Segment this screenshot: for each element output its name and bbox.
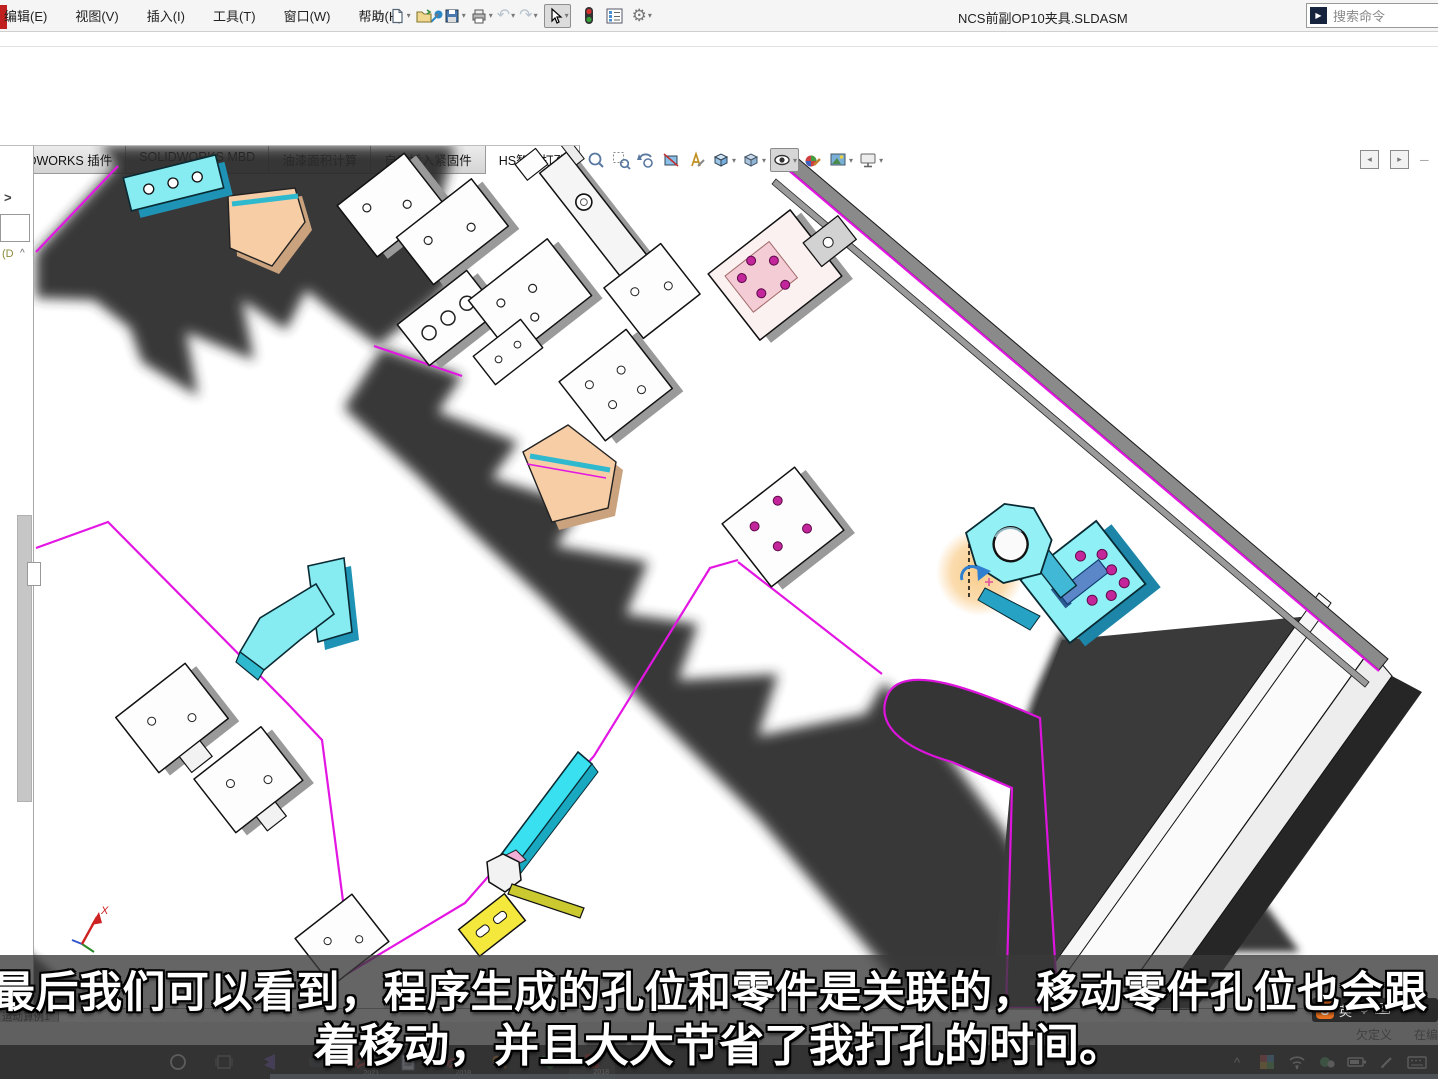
options-gear-icon[interactable]: ⚙ <box>630 3 654 29</box>
menu-insert[interactable]: 插入(I) <box>133 6 199 25</box>
tree-filter-box[interactable] <box>0 214 30 242</box>
minimize-pane-icon[interactable]: ─ <box>1420 153 1429 167</box>
rebuild-traffic-light-icon[interactable] <box>581 3 597 29</box>
tree-root-label: (D <box>2 248 14 260</box>
section-view-icon[interactable] <box>660 149 682 171</box>
menu-bar: 编辑(E) 视图(V) 插入(I) 工具(T) 窗口(W) 帮助(H) ⌂ ↶ … <box>0 0 1438 32</box>
annotation-view-icon[interactable] <box>685 149 707 171</box>
quick-access-toolbar: ⌂ ↶ ↷ ⚙ <box>372 0 654 31</box>
axis-x-label: X <box>100 905 109 917</box>
toolbar-divider <box>0 46 1438 47</box>
open-icon[interactable] <box>413 3 441 29</box>
undo-icon[interactable]: ↶ <box>495 3 517 29</box>
redo-icon[interactable]: ↷ <box>517 3 539 29</box>
taskbar-edge-strip <box>270 1074 1438 1079</box>
frame-structure <box>995 593 1422 1010</box>
search-icon: ▶ <box>1310 7 1327 24</box>
ime-toolbar: S 英 <box>1312 998 1438 1022</box>
search-placeholder: 搜索命令 <box>1333 6 1385 25</box>
previous-view-icon[interactable] <box>635 149 657 171</box>
view-settings-icon[interactable] <box>857 149 884 171</box>
status-bar: 欠定义 在编辑 <box>0 1022 1438 1045</box>
panel-splitter-handle[interactable] <box>27 562 41 586</box>
home-icon[interactable]: ⌂ <box>372 3 386 29</box>
zoom-to-area-icon[interactable] <box>610 149 632 171</box>
status-under-defined: 欠定义 <box>1356 1026 1392 1043</box>
tree-scrollbar[interactable] <box>17 515 32 802</box>
motion-study-tab[interactable]: 运动算例1 <box>0 1009 59 1022</box>
display-style-icon[interactable] <box>740 149 767 171</box>
menu-edit[interactable]: 编辑(E) <box>0 6 61 25</box>
pane-controls: ◂ ▸ ─ <box>1360 150 1429 169</box>
heads-up-toolbar <box>585 148 887 172</box>
save-icon[interactable] <box>441 3 468 29</box>
document-title: NCS前副OP10夹具.SLDASM <box>958 8 1128 27</box>
ime-logo-icon[interactable]: S <box>1316 1001 1334 1019</box>
menu-window[interactable]: 窗口(W) <box>270 6 345 25</box>
collapse-tree-button[interactable]: ^ <box>20 248 25 259</box>
study-tab-bar: 运动算例1 <box>0 1008 1438 1023</box>
menu-tools[interactable]: 工具(T) <box>199 6 270 25</box>
ime-mic-icon[interactable] <box>1359 1002 1369 1018</box>
expand-panel-button[interactable]: > <box>4 190 12 205</box>
solidworks-window: X 编辑(E) 视图(V) 插入(I) 工具(T) 窗口(W) 帮助(H) ⌂ … <box>0 0 1438 1079</box>
hide-show-items-icon[interactable] <box>770 148 799 172</box>
menu-view[interactable]: 视图(V) <box>61 6 132 25</box>
zoom-to-fit-icon[interactable] <box>585 149 607 171</box>
collapse-right-pane-icon[interactable]: ▸ <box>1390 150 1409 169</box>
print-icon[interactable] <box>468 3 495 29</box>
axis-triad: X <box>72 905 109 952</box>
edit-appearance-icon[interactable] <box>802 149 824 171</box>
viewport-3d[interactable]: X <box>0 146 1438 1010</box>
ime-mode-toggle[interactable]: 英 <box>1339 1001 1352 1020</box>
display-pane-list-icon[interactable] <box>603 3 626 29</box>
apply-scene-icon[interactable] <box>827 149 854 171</box>
collapse-left-pane-icon[interactable]: ◂ <box>1360 150 1379 169</box>
search-commands-box[interactable]: ▶ 搜索命令 <box>1306 3 1438 28</box>
ime-keyboard-icon[interactable] <box>1375 1003 1390 1017</box>
taskbar-task-view-icon[interactable] <box>201 1045 247 1079</box>
view-orientation-icon[interactable] <box>710 149 737 171</box>
highlighted-part[interactable] <box>936 493 1161 653</box>
new-document-icon[interactable] <box>386 3 413 29</box>
select-cursor-icon[interactable] <box>544 4 571 28</box>
taskbar-search-icon[interactable] <box>155 1045 201 1079</box>
windows-taskbar: 2021 2018 2018 ^ <box>0 1045 1438 1079</box>
